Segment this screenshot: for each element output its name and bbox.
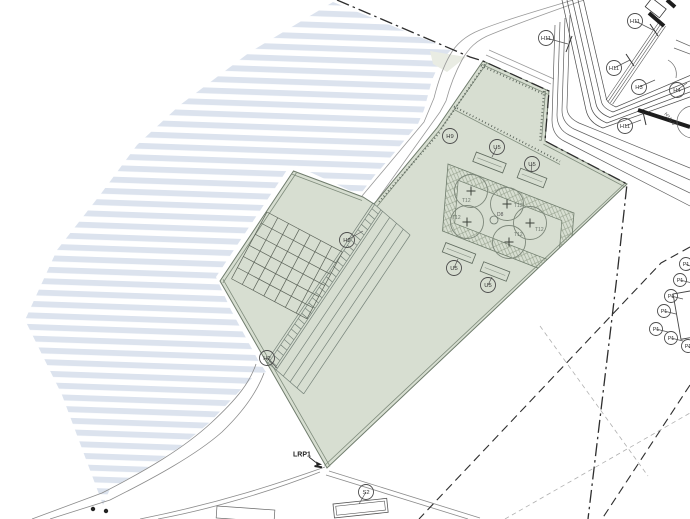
svg-text:H11: H11 xyxy=(630,19,640,25)
svg-text:H4: H4 xyxy=(673,88,681,94)
svg-text:H11: H11 xyxy=(620,124,630,130)
svg-text:P1: P1 xyxy=(668,294,675,300)
svg-text:U5: U5 xyxy=(528,162,535,168)
svg-text:D8: D8 xyxy=(497,212,504,218)
svg-text:T12: T12 xyxy=(514,232,523,238)
svg-text:P1: P1 xyxy=(683,262,690,268)
svg-text:H11: H11 xyxy=(541,36,551,42)
svg-text:T12: T12 xyxy=(452,215,461,221)
svg-text:H2: H2 xyxy=(263,356,270,362)
svg-text:P1: P1 xyxy=(677,278,684,284)
svg-text:H2: H2 xyxy=(343,238,350,244)
svg-text:P1: P1 xyxy=(653,327,660,333)
svg-text:H3: H3 xyxy=(635,85,642,91)
svg-text:T12: T12 xyxy=(514,203,523,209)
svg-text:T12: T12 xyxy=(462,198,471,204)
svg-text:U5: U5 xyxy=(450,266,457,272)
svg-text:P1: P1 xyxy=(685,344,690,350)
svg-text:U5: U5 xyxy=(484,283,491,289)
svg-text:P1: P1 xyxy=(661,309,668,315)
svg-text:P1: P1 xyxy=(668,336,675,342)
svg-text:H11: H11 xyxy=(609,66,619,72)
svg-text:U5: U5 xyxy=(493,145,500,151)
svg-text:T12: T12 xyxy=(535,227,544,233)
svg-text:H9: H9 xyxy=(446,134,453,140)
svg-text:S2: S2 xyxy=(362,490,369,496)
svg-text:LRP1: LRP1 xyxy=(293,452,311,459)
